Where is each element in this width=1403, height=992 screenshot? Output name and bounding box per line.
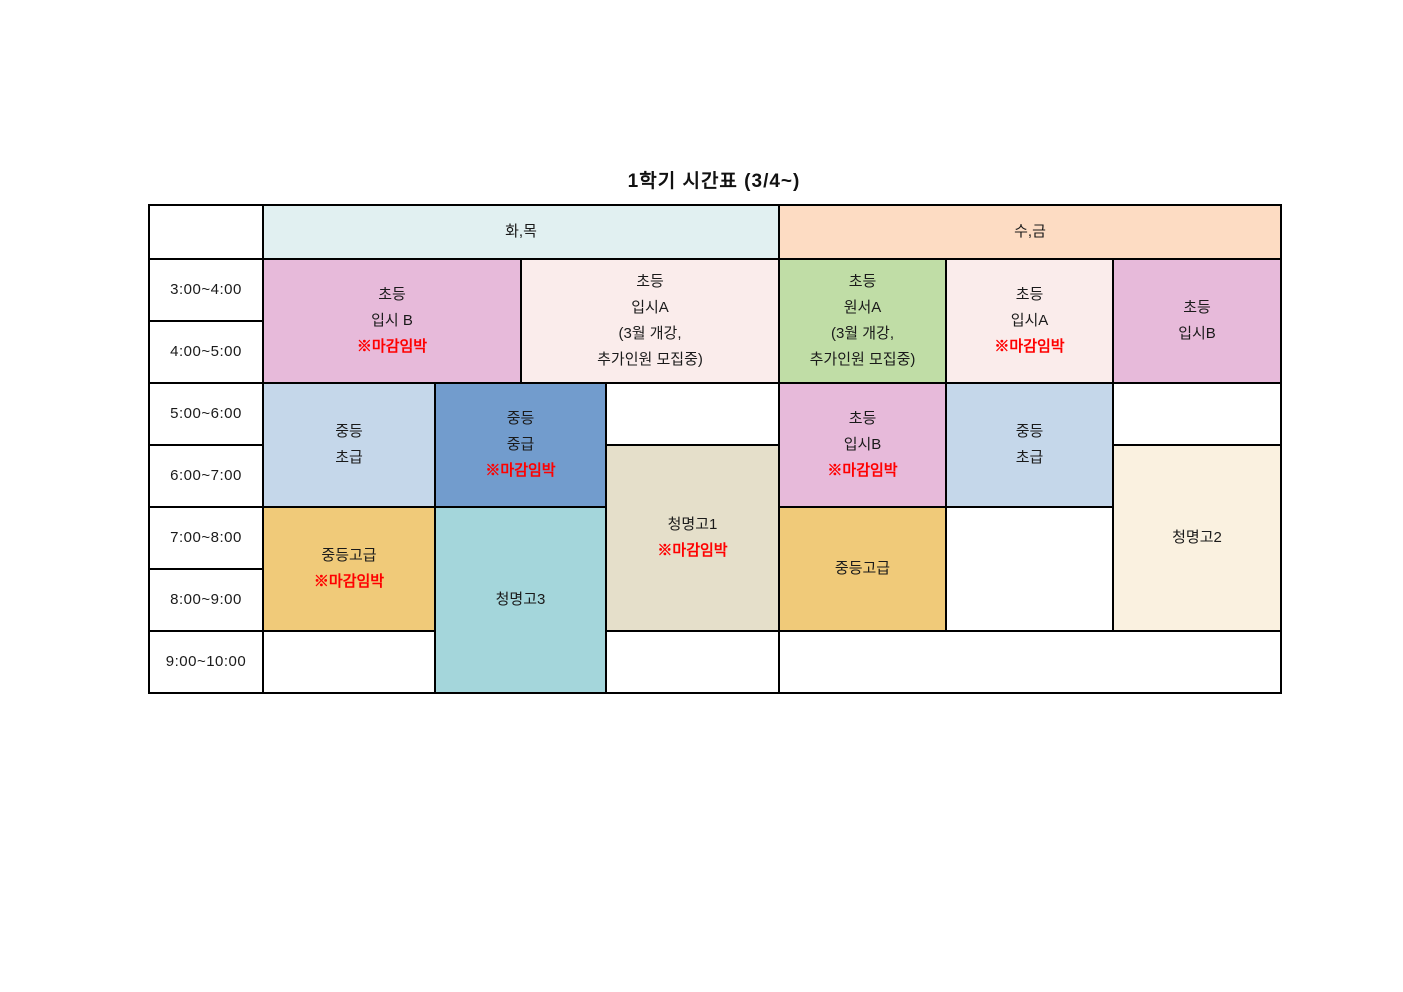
class-name: 청명고2 xyxy=(1114,525,1280,551)
class-note: (3월 개강, xyxy=(780,321,945,347)
class-name: 중등 xyxy=(436,406,605,432)
class-name: 청명고3 xyxy=(436,587,605,613)
time-label: 6:00~7:00 xyxy=(149,445,263,507)
class-name: 초급 xyxy=(947,445,1112,471)
class-name: 중등고급 xyxy=(780,556,945,582)
empty-cell xyxy=(606,631,779,693)
class-cell-tt-mid-advanced: 중등고급 ※마감임박 xyxy=(263,507,435,631)
class-cell-tt-mid-beginner: 중등 초급 xyxy=(263,383,435,507)
class-cell-wf-cheongmyeong2: 청명고2 xyxy=(1113,445,1281,631)
time-label: 7:00~8:00 xyxy=(149,507,263,569)
timetable-sheet: 1학기 시간표 (3/4~) 화,목 수,금 3:00~4:00 초등 입시 B… xyxy=(0,0,1403,992)
class-name: 입시A xyxy=(947,308,1112,334)
time-label: 5:00~6:00 xyxy=(149,383,263,445)
class-cell-tt-elem-ipsi-a: 초등 입시A (3월 개강, 추가인원 모집중) xyxy=(521,259,779,383)
class-cell-wf-elem-ipsi-b-top: 초등 입시B xyxy=(1113,259,1281,383)
class-name: 중등 xyxy=(264,419,434,445)
class-cell-wf-elem-wonseo-a: 초등 원서A (3월 개강, 추가인원 모집중) xyxy=(779,259,946,383)
deadline-warning: ※마감임박 xyxy=(264,334,520,360)
class-name: 초등 xyxy=(780,269,945,295)
time-label: 8:00~9:00 xyxy=(149,569,263,631)
class-cell-tt-elem-ipsi-b: 초등 입시 B ※마감임박 xyxy=(263,259,521,383)
class-note: 추가인원 모집중) xyxy=(780,347,945,373)
class-cell-tt-cheongmyeong3: 청명고3 xyxy=(435,507,606,693)
class-name: 입시B xyxy=(1114,321,1280,347)
empty-cell xyxy=(946,507,1113,631)
class-name: 중급 xyxy=(436,432,605,458)
time-label: 4:00~5:00 xyxy=(149,321,263,383)
class-cell-tt-cheongmyeong1: 청명고1 ※마감임박 xyxy=(606,445,779,631)
class-note: 추가인원 모집중) xyxy=(522,347,778,373)
deadline-warning: ※마감임박 xyxy=(436,458,605,484)
class-cell-wf-mid-beginner: 중등 초급 xyxy=(946,383,1113,507)
day-header-tue-thu: 화,목 xyxy=(263,205,779,259)
timetable-table: 화,목 수,금 3:00~4:00 초등 입시 B ※마감임박 초등 입시A (… xyxy=(148,204,1282,694)
deadline-warning: ※마감임박 xyxy=(780,458,945,484)
class-name: 초등 xyxy=(264,282,520,308)
class-name: 초등 xyxy=(947,282,1112,308)
class-name: 초등 xyxy=(780,406,945,432)
class-cell-wf-elem-ipsi-a: 초등 입시A ※마감임박 xyxy=(946,259,1113,383)
class-name: 청명고1 xyxy=(607,512,778,538)
time-label: 9:00~10:00 xyxy=(149,631,263,693)
page-title: 1학기 시간표 (3/4~) xyxy=(148,166,1280,193)
empty-cell xyxy=(779,631,1281,693)
corner-cell xyxy=(149,205,263,259)
class-name: 중등 xyxy=(947,419,1112,445)
empty-cell xyxy=(1113,383,1281,445)
class-name: 입시B xyxy=(780,432,945,458)
deadline-warning: ※마감임박 xyxy=(607,538,778,564)
class-name: 초등 xyxy=(522,269,778,295)
class-name: 입시A xyxy=(522,295,778,321)
empty-cell xyxy=(263,631,435,693)
deadline-warning: ※마감임박 xyxy=(264,569,434,595)
class-name: 초급 xyxy=(264,445,434,471)
class-note: (3월 개강, xyxy=(522,321,778,347)
class-name: 원서A xyxy=(780,295,945,321)
deadline-warning: ※마감임박 xyxy=(947,334,1112,360)
day-header-wed-fri: 수,금 xyxy=(779,205,1281,259)
empty-cell xyxy=(606,383,779,445)
class-name: 초등 xyxy=(1114,295,1280,321)
class-cell-wf-elem-ipsi-b: 초등 입시B ※마감임박 xyxy=(779,383,946,507)
class-name: 입시 B xyxy=(264,308,520,334)
class-name: 중등고급 xyxy=(264,543,434,569)
class-cell-wf-mid-advanced: 중등고급 xyxy=(779,507,946,631)
class-cell-tt-mid-intermediate: 중등 중급 ※마감임박 xyxy=(435,383,606,507)
time-label: 3:00~4:00 xyxy=(149,259,263,321)
